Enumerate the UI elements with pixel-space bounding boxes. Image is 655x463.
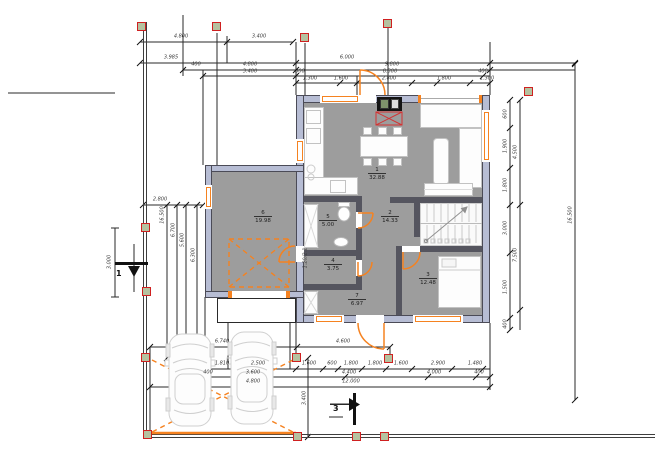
toilet-tank (338, 202, 350, 207)
oven (330, 180, 346, 193)
bench (433, 138, 449, 185)
column (143, 430, 152, 439)
dim-label: 300 (295, 70, 305, 75)
room-area: 6.97 (348, 299, 366, 307)
dim-label: 1.480 (468, 362, 482, 367)
window-glass-line (420, 98, 480, 99)
door-opening (356, 260, 362, 276)
dim-label: 4.800 (243, 63, 257, 68)
interior-wall (304, 250, 362, 256)
column (141, 223, 150, 232)
chair (363, 158, 372, 166)
dim-label: 1.500 (504, 280, 509, 294)
dim-label: 3.000 (504, 221, 509, 235)
fireplace-firebox (380, 99, 389, 109)
section-label-1: 1 (116, 270, 122, 278)
room-area: 3.75 (324, 264, 342, 272)
interior-wall (396, 252, 402, 315)
column (212, 22, 221, 31)
door-size-tag: 1.20/2.1 (304, 248, 309, 269)
window-frame (322, 96, 358, 102)
dim-label: 600 (327, 362, 337, 367)
garage-wall-top (205, 165, 304, 172)
dim-label: 1.600 (334, 77, 348, 82)
staircase (420, 203, 482, 246)
dim-label: 2.800 (382, 77, 396, 82)
window-frame (297, 141, 303, 161)
room-label-3: 3 12.48 (414, 272, 442, 286)
column (300, 33, 309, 42)
room-area: 5.00 (319, 220, 337, 228)
porch (217, 298, 296, 323)
dim-label: 2.800 (153, 198, 167, 203)
window-frame (206, 187, 211, 207)
dim-label: 1.600 (302, 362, 316, 367)
chair (363, 127, 372, 135)
dim-label: 6.740 (215, 340, 229, 345)
dim-label: 8.300 (383, 70, 397, 75)
dim-label: 3.600 (246, 371, 260, 376)
door-opening (356, 212, 362, 228)
sofa (459, 128, 482, 188)
dim-label: 5.600 (181, 233, 186, 247)
dim-label: 3.400 (303, 391, 308, 405)
garage-door-tick (228, 291, 232, 298)
column (384, 354, 393, 363)
window-frame (415, 316, 461, 322)
column (137, 22, 146, 31)
dim-label: 6.000 (340, 56, 354, 61)
dim-label: 4.600 (336, 340, 350, 345)
dim-label: 6.700 (172, 223, 177, 237)
dim-label: 400 (504, 319, 509, 329)
room-label-1: 1 32.88 (363, 167, 391, 181)
door-opening (358, 95, 376, 103)
chair (393, 127, 402, 135)
dim-label: 7.500 (514, 248, 519, 262)
dim-label: 1.800 (344, 362, 358, 367)
dim-label: 2.900 (431, 362, 445, 367)
column (352, 432, 361, 441)
wardrobe (304, 291, 318, 314)
window-frame (316, 316, 342, 322)
dim-label: 3.400 (243, 70, 257, 75)
window-frame-tick (479, 95, 482, 103)
garage-door-opening (228, 291, 290, 298)
car-1 (165, 334, 215, 426)
dining-table (360, 136, 408, 157)
dim-label: 400 (474, 371, 484, 376)
door-opening (356, 315, 384, 323)
dim-label: 2.500 (251, 362, 265, 367)
interior-wall (304, 196, 362, 202)
dim-label: 1.800 (368, 362, 382, 367)
dim-label: 12.000 (342, 380, 360, 385)
dim-label: 3.400 (252, 35, 266, 40)
dim-label: 4.800 (174, 35, 188, 40)
dim-label: 1.600 (394, 362, 408, 367)
door-opening (402, 246, 420, 252)
column (141, 353, 150, 362)
room-label-7: 7 6.97 (343, 293, 371, 307)
window-frame-tick (418, 95, 421, 103)
dim-label: 400 (203, 371, 213, 376)
room-area: 19.98 (254, 216, 272, 224)
interior-wall (304, 284, 362, 290)
floor-plan-canvas: 1 32.88 2 14.33 3 12.48 4 3.75 5 5.00 6 … (0, 0, 655, 463)
column (383, 19, 392, 28)
bed (438, 256, 481, 308)
chair (393, 158, 402, 166)
column (293, 432, 302, 441)
fridge (306, 110, 321, 124)
dim-label: 16.500 (569, 206, 574, 224)
column (380, 432, 389, 441)
section-label-3: 3 (333, 405, 339, 413)
cabinet (424, 183, 473, 196)
dim-label: 4.500 (514, 145, 519, 159)
dim-label: 16.500 (161, 206, 166, 224)
dim-label: 1.800 (437, 77, 451, 82)
dim-label: 1.300 (303, 77, 317, 82)
column (292, 353, 301, 362)
room-area: 12.48 (419, 278, 437, 286)
dim-label: 1.800 (504, 178, 509, 192)
room-label-2: 2 14.33 (376, 210, 404, 224)
dim-label: 400 (478, 70, 488, 75)
room-area: 14.33 (381, 216, 399, 224)
column (142, 287, 151, 296)
fireplace-panel (391, 99, 399, 109)
dim-label: 4.400 (342, 371, 356, 376)
window-frame (484, 112, 489, 160)
cooktop (306, 128, 321, 144)
garage-floor (212, 172, 296, 291)
column (524, 87, 533, 96)
dim-label: 600 (504, 109, 509, 119)
room-label-4: 4 3.75 (319, 258, 347, 272)
chair (378, 127, 387, 135)
room-label-5: 5 5.00 (314, 214, 342, 228)
dim-label: 3.985 (164, 56, 178, 61)
window-opening (418, 95, 482, 103)
dim-label: 4.000 (427, 371, 441, 376)
dim-label: 4.800 (246, 380, 260, 385)
dim-label: 1.300 (480, 77, 494, 82)
chair (378, 158, 387, 166)
dim-label: 1.810 (215, 362, 229, 367)
dim-label: 9.800 (385, 63, 399, 68)
room-area: 32.88 (368, 173, 386, 181)
dim-label: 1.900 (504, 139, 509, 153)
dim-label: 6.300 (192, 248, 197, 262)
dim-label: 400 (191, 63, 201, 68)
garage-door-tick (286, 291, 290, 298)
exterior-wall-left (296, 95, 304, 323)
room-label-6: 6 19.98 (249, 210, 277, 224)
sofa (420, 104, 482, 128)
dim-label: 3.000 (108, 255, 113, 269)
